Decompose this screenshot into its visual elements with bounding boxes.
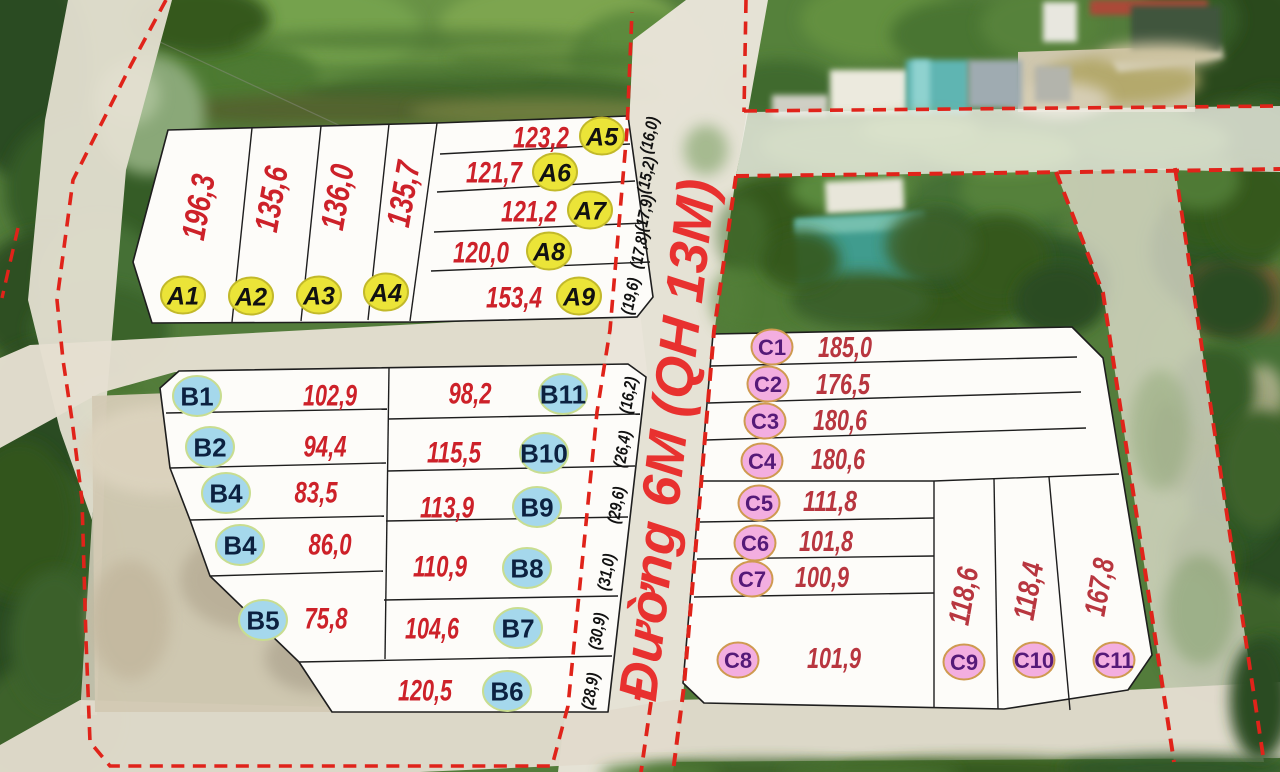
svg-text:102,9: 102,9 xyxy=(303,380,357,413)
svg-text:101,8: 101,8 xyxy=(799,526,854,558)
svg-text:185,0: 185,0 xyxy=(818,332,872,364)
svg-text:B10: B10 xyxy=(520,439,568,469)
svg-text:104,6: 104,6 xyxy=(405,613,459,646)
svg-text:B8: B8 xyxy=(510,554,543,584)
svg-text:153,4: 153,4 xyxy=(486,282,542,315)
svg-text:120,5: 120,5 xyxy=(398,675,453,708)
svg-text:180,6: 180,6 xyxy=(813,405,868,437)
svg-text:94,4: 94,4 xyxy=(304,431,347,464)
svg-text:A1: A1 xyxy=(166,282,199,310)
svg-text:121,7: 121,7 xyxy=(466,157,523,190)
svg-text:C9: C9 xyxy=(950,650,978,675)
svg-text:86,0: 86,0 xyxy=(309,529,352,562)
svg-text:A7: A7 xyxy=(573,197,607,225)
svg-text:98,2: 98,2 xyxy=(449,378,492,411)
svg-text:A9: A9 xyxy=(562,283,595,311)
svg-text:B2: B2 xyxy=(193,433,226,463)
svg-text:C1: C1 xyxy=(758,335,786,360)
svg-text:C4: C4 xyxy=(748,449,777,474)
svg-text:115,5: 115,5 xyxy=(427,437,482,470)
svg-text:100,9: 100,9 xyxy=(795,562,849,594)
svg-text:C2: C2 xyxy=(754,372,782,397)
svg-text:120,0: 120,0 xyxy=(453,237,509,270)
svg-text:C6: C6 xyxy=(741,531,769,556)
svg-text:B1: B1 xyxy=(180,382,213,412)
svg-text:C11: C11 xyxy=(1094,648,1133,673)
svg-text:B4: B4 xyxy=(223,531,257,561)
svg-text:121,2: 121,2 xyxy=(501,196,557,229)
svg-text:A4: A4 xyxy=(369,279,402,307)
svg-text:A2: A2 xyxy=(234,283,267,311)
svg-text:83,5: 83,5 xyxy=(295,477,339,510)
svg-text:110,9: 110,9 xyxy=(413,551,467,584)
svg-text:101,9: 101,9 xyxy=(807,643,861,675)
svg-text:B7: B7 xyxy=(501,614,534,644)
svg-text:C8: C8 xyxy=(724,648,752,673)
svg-text:B6: B6 xyxy=(490,677,523,707)
svg-text:B11: B11 xyxy=(540,380,586,410)
svg-text:C5: C5 xyxy=(745,491,773,516)
svg-text:B4: B4 xyxy=(209,479,243,509)
svg-text:111,8: 111,8 xyxy=(803,486,858,518)
svg-text:113,9: 113,9 xyxy=(420,492,474,525)
svg-text:C7: C7 xyxy=(738,567,766,592)
svg-text:C3: C3 xyxy=(751,409,779,434)
svg-text:A8: A8 xyxy=(532,238,565,266)
svg-text:176,5: 176,5 xyxy=(816,369,871,401)
svg-text:A5: A5 xyxy=(585,123,619,151)
svg-text:B5: B5 xyxy=(246,606,279,636)
svg-text:75,8: 75,8 xyxy=(305,603,348,636)
svg-text:B9: B9 xyxy=(520,493,553,523)
svg-text:A3: A3 xyxy=(302,282,335,310)
svg-text:180,6: 180,6 xyxy=(811,444,866,476)
svg-text:123,2: 123,2 xyxy=(513,122,569,155)
svg-text:C10: C10 xyxy=(1014,648,1054,673)
svg-text:A6: A6 xyxy=(538,159,572,187)
